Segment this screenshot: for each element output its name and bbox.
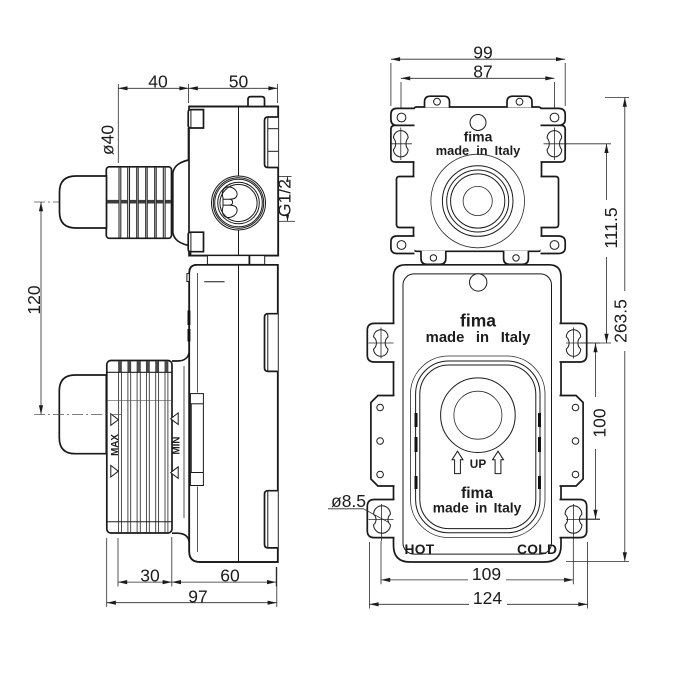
svg-text:109: 109 — [472, 564, 501, 584]
svg-text:124: 124 — [473, 588, 502, 608]
svg-text:30: 30 — [140, 565, 160, 585]
svg-text:40: 40 — [148, 72, 168, 92]
svg-text:263.5: 263.5 — [611, 299, 631, 343]
svg-text:MAX: MAX — [110, 434, 121, 456]
svg-text:fima: fima — [460, 311, 496, 331]
svg-text:made in Italy: made in Italy — [436, 143, 521, 158]
svg-text:UP: UP — [470, 457, 487, 471]
svg-text:COLD: COLD — [517, 542, 557, 557]
svg-text:made in Italy: made in Italy — [433, 500, 522, 515]
svg-text:ø40: ø40 — [98, 125, 118, 155]
svg-text:111.5: 111.5 — [601, 207, 621, 248]
svg-text:60: 60 — [220, 565, 240, 585]
svg-text:100: 100 — [590, 408, 610, 437]
svg-text:ø8.5: ø8.5 — [331, 491, 366, 511]
svg-text:made in Italy: made in Italy — [426, 330, 531, 346]
svg-text:120: 120 — [24, 285, 44, 314]
svg-text:99: 99 — [473, 43, 492, 63]
svg-text:MIN: MIN — [172, 437, 183, 455]
svg-text:G1/2: G1/2 — [275, 179, 295, 217]
svg-text:fima: fima — [464, 128, 493, 144]
svg-text:87: 87 — [473, 62, 492, 82]
svg-text:97: 97 — [188, 586, 207, 606]
svg-text:HOT: HOT — [405, 542, 435, 557]
svg-text:50: 50 — [229, 72, 249, 92]
svg-text:fima: fima — [461, 485, 493, 502]
